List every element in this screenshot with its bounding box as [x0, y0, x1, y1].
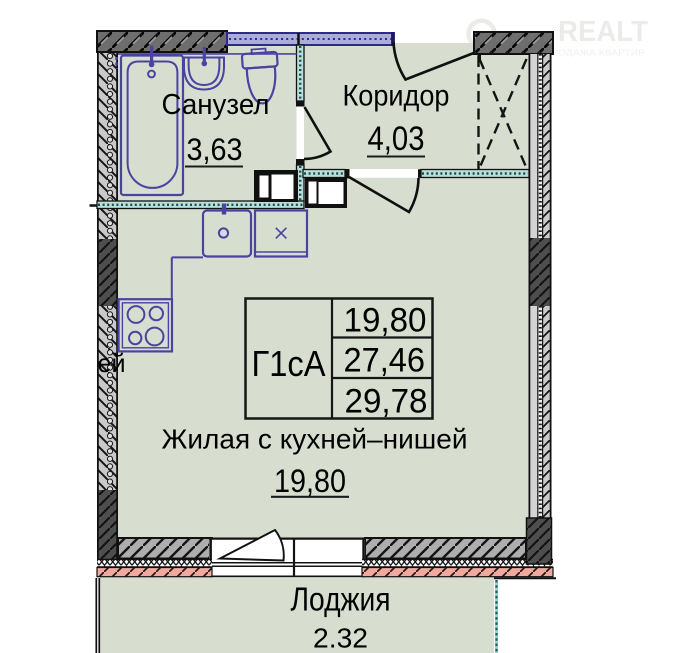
svg-text:ей: ей [98, 348, 126, 378]
svg-text:Лоджия: Лоджия [291, 581, 391, 618]
svg-text:27,46: 27,46 [344, 342, 426, 380]
svg-text:2.32: 2.32 [313, 623, 368, 653]
svg-text:Жилая с кухней–нишей: Жилая с кухней–нишей [162, 424, 468, 455]
svg-text:4,03: 4,03 [368, 120, 425, 158]
svg-text:Г1сА: Г1сА [252, 343, 326, 384]
svg-text:19,80: 19,80 [344, 302, 427, 340]
svg-text:19,80: 19,80 [274, 463, 346, 499]
svg-text:REALT: REALT [558, 16, 648, 48]
svg-text:3,63: 3,63 [187, 131, 243, 167]
svg-text:Коридор: Коридор [343, 80, 450, 113]
svg-text:Санузел: Санузел [162, 89, 270, 121]
svg-text:ПРОДАЖА КВАРТИР: ПРОДАЖА КВАРТИР [544, 49, 645, 58]
svg-text:29,78: 29,78 [345, 383, 428, 421]
